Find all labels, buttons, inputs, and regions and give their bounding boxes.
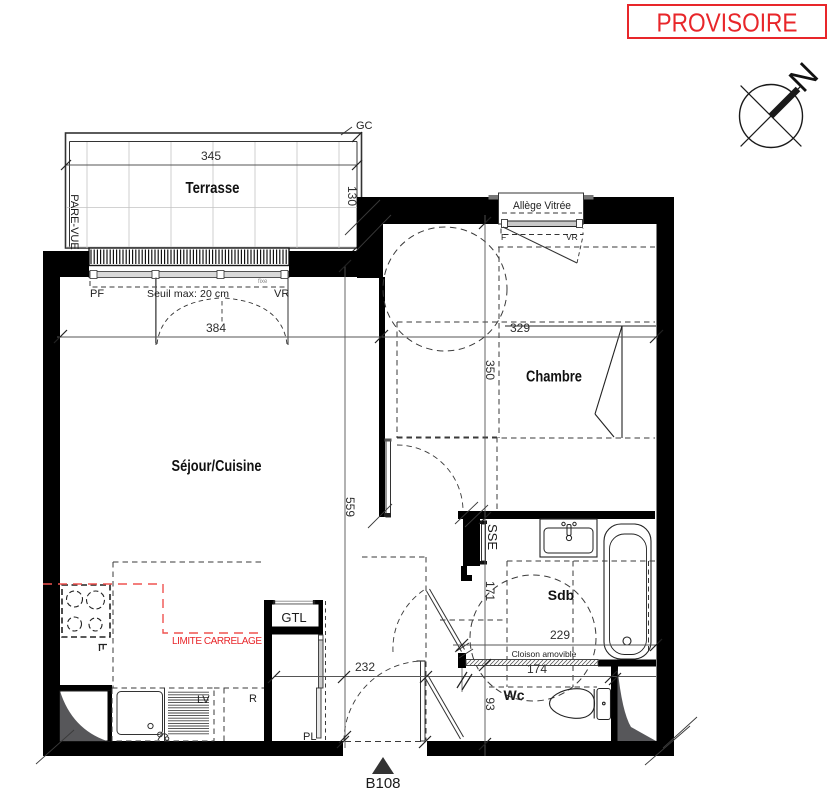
svg-text:350: 350 <box>483 360 497 380</box>
svg-text:Sdb: Sdb <box>548 587 574 603</box>
svg-text:VR: VR <box>566 232 578 242</box>
svg-text:329: 329 <box>510 321 530 335</box>
svg-text:LIMITE CARRELAGE: LIMITE CARRELAGE <box>172 636 262 647</box>
svg-text:PL: PL <box>303 731 316 743</box>
svg-text:GC: GC <box>356 120 373 132</box>
svg-text:Wc: Wc <box>504 687 525 703</box>
svg-text:93: 93 <box>483 697 497 711</box>
svg-text:Séjour/Cuisine: Séjour/Cuisine <box>172 458 262 475</box>
svg-text:F: F <box>501 232 506 242</box>
svg-text:VR: VR <box>274 288 289 300</box>
svg-text:PROVISOIRE: PROVISOIRE <box>657 8 798 38</box>
svg-text:232: 232 <box>355 660 375 674</box>
svg-text:174: 174 <box>527 662 547 676</box>
svg-text:Allège Vitrée: Allège Vitrée <box>513 200 571 212</box>
svg-text:229: 229 <box>550 628 570 642</box>
svg-text:Terrasse: Terrasse <box>186 180 240 197</box>
svg-text:Cloison amovible: Cloison amovible <box>512 649 577 659</box>
svg-text:GTL: GTL <box>281 610 306 625</box>
svg-text:130: 130 <box>345 186 359 206</box>
svg-text:fixe: fixe <box>258 279 268 285</box>
svg-text:345: 345 <box>201 149 221 163</box>
svg-text:B108: B108 <box>365 775 400 792</box>
svg-text:SSE: SSE <box>485 524 500 550</box>
svg-text:384: 384 <box>206 321 226 335</box>
svg-text:171: 171 <box>483 581 497 601</box>
svg-text:Chambre: Chambre <box>526 369 582 386</box>
svg-text:559: 559 <box>343 497 357 517</box>
svg-text:R: R <box>249 693 257 705</box>
svg-text:PF: PF <box>90 288 104 300</box>
svg-text:LV: LV <box>197 694 210 706</box>
svg-text:PARE-VUE: PARE-VUE <box>68 194 80 249</box>
